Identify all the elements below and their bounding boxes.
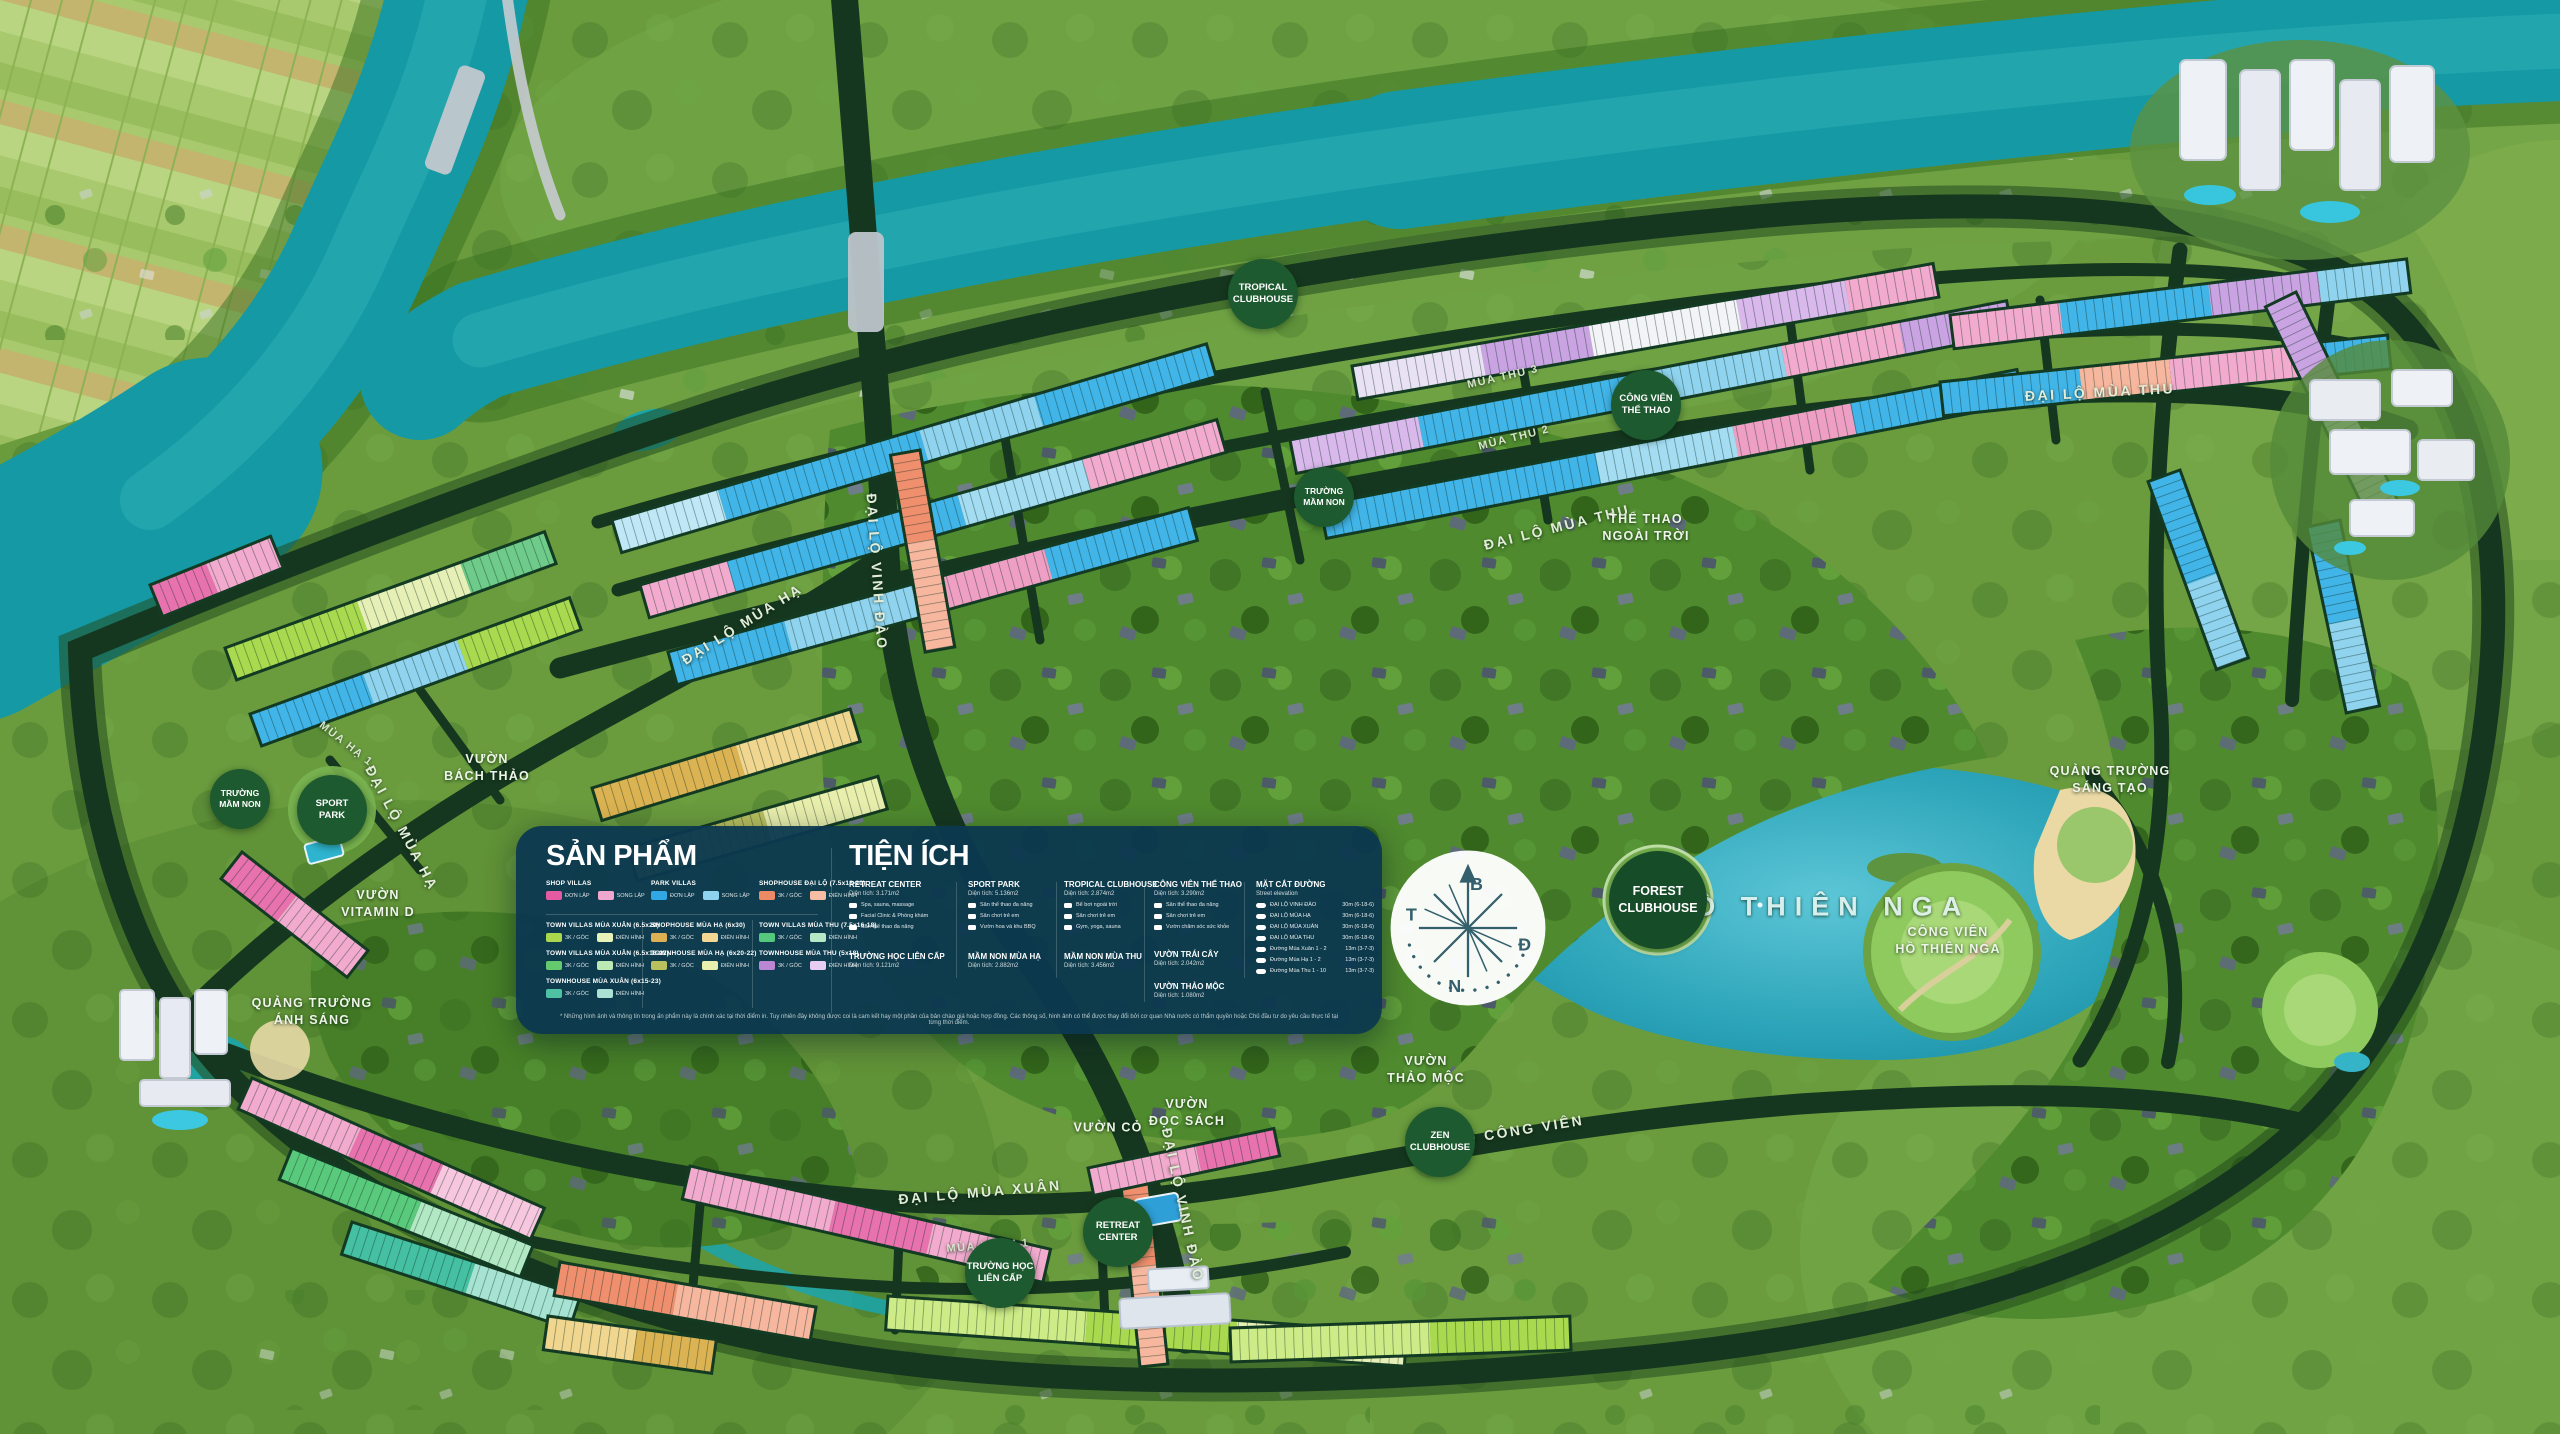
area-label: QUẢNG TRƯỜNG SÁNG TẠO (2050, 763, 2171, 797)
compass-south: N (1448, 976, 1461, 996)
area-label: VƯỜN BÁCH THẢO (444, 751, 530, 785)
poi-tropical-clubhouse: TROPICAL CLUBHOUSE (1228, 259, 1298, 329)
color-swatch (546, 961, 562, 970)
poi-school: TRƯỜNG HỌC LIÊN CẤP (965, 1238, 1035, 1308)
compass: B T Đ N (1383, 843, 1553, 1013)
area-label: VƯỜN THẢO MỘC (1387, 1053, 1465, 1087)
resort-complex (2270, 340, 2510, 580)
road-icon (1256, 925, 1266, 930)
masterplan-map: ĐẠI LỘ VINH ĐÀO ĐẠI LỘ VINH ĐÀO ĐẠI LỘ M… (0, 0, 2560, 1434)
feature-icon (1064, 903, 1072, 908)
area-label: QUẢNG TRƯỜNG ÁNH SÁNG (252, 995, 373, 1029)
color-swatch (546, 989, 562, 998)
color-swatch (759, 891, 775, 900)
amenity-item: SPORT PARK Diện tích: 5.136m2 Sân thể th… (968, 880, 1068, 930)
color-swatch (759, 933, 775, 942)
road-icon (1256, 958, 1266, 963)
road-icon (1256, 914, 1266, 919)
road-icon (1256, 936, 1266, 941)
compass-east: Đ (1518, 935, 1531, 955)
amenity-item: CÔNG VIÊN THỂ THAO Diện tích: 3.290m2 Sâ… (1154, 880, 1254, 930)
amenity-item: RETREAT CENTER Diện tích: 3.171m2 Spa, s… (849, 880, 949, 930)
area-label: THỂ THAO NGOÀI TRỜI (1602, 511, 1689, 545)
color-swatch (651, 933, 667, 942)
poi-sport-park: SPORT PARK (297, 775, 367, 845)
amenity-item: MẦM NON MÙA HẠ Diện tích: 2.882m2 (968, 952, 1068, 969)
legend-panel: SẢN PHẨM TIỆN ÍCH SHOP VILLAS ĐƠN LẬPSON… (516, 826, 1382, 1034)
amenity-item: VƯỜN THẢO MỘC Diện tích: 1.080m2 (1154, 982, 1254, 999)
feature-icon (849, 903, 857, 908)
color-swatch (810, 891, 826, 900)
road-icon (1256, 969, 1266, 974)
feature-icon (968, 903, 976, 908)
feature-icon (1154, 914, 1162, 919)
compass-west: T (1406, 904, 1417, 924)
product-item: TOWNHOUSE MÙA XUÂN (6x15-23) 3K / GÓCĐIỂ… (546, 978, 671, 998)
color-swatch (702, 961, 718, 970)
poi-forest-clubhouse: FOREST CLUBHOUSE (1609, 851, 1707, 949)
feature-icon (968, 925, 976, 930)
color-swatch (651, 891, 667, 900)
product-item: SHOPHOUSE MÙA HẠ (6x30) 3K / GÓCĐIỂN HÌN… (651, 922, 776, 942)
feature-icon (849, 925, 857, 930)
color-swatch (651, 961, 667, 970)
product-item: PARK VILLAS ĐƠN LẬPSONG LẬP (651, 880, 776, 900)
poi-kindergarten: TRƯỜNG MẦM NON (1294, 467, 1354, 527)
color-swatch (597, 933, 613, 942)
map-canvas (0, 0, 2560, 1434)
products-title: SẢN PHẨM (546, 840, 697, 873)
lake-label: HỒ THIÊN NGA (1666, 892, 1971, 923)
color-swatch (597, 961, 613, 970)
poi-retreat-center: RETREAT CENTER (1083, 1197, 1153, 1267)
color-swatch (546, 933, 562, 942)
poi-zen-clubhouse: ZEN CLUBHOUSE (1405, 1107, 1475, 1177)
feature-icon (968, 914, 976, 919)
color-swatch (810, 961, 826, 970)
road-sections: MẶT CẮT ĐƯỜNG Street elevation ĐẠI LỘ VI… (1256, 880, 1374, 974)
feature-icon (849, 914, 857, 919)
poi-kindergarten: TRƯỜNG MẦM NON (210, 769, 270, 829)
amenity-item: TROPICAL CLUBHOUSE Diện tích: 2.874m2 Bể… (1064, 880, 1164, 930)
area-label: VƯỜN ĐỌC SÁCH (1149, 1096, 1225, 1130)
area-label: CÔNG VIÊN HỒ THIÊN NGA (1895, 924, 2000, 958)
product-item: TOWNHOUSE MÙA HẠ (6x20-22) 3K / GÓCĐIỂN … (651, 950, 776, 970)
area-label: VƯỜN VITAMIN D (341, 887, 415, 921)
color-swatch (759, 961, 775, 970)
amenity-item: TRƯỜNG HỌC LIÊN CẤP Diện tích: 9.121m2 (849, 952, 949, 969)
color-swatch (598, 891, 614, 900)
feature-icon (1154, 903, 1162, 908)
road-icon (1256, 903, 1266, 908)
compass-north: B (1470, 874, 1483, 894)
amenity-item: VƯỜN TRÁI CÂY Diện tích: 2.042m2 (1154, 950, 1254, 967)
color-swatch (703, 891, 719, 900)
color-swatch (702, 933, 718, 942)
feature-icon (1064, 914, 1072, 919)
legend-disclaimer: * Những hình ảnh và thông tin trong ấn p… (556, 1014, 1342, 1026)
feature-icon (1064, 925, 1072, 930)
road-icon (1256, 947, 1266, 952)
feature-icon (1154, 925, 1162, 930)
color-swatch (810, 933, 826, 942)
amenity-item: MẦM NON MÙA THU Diện tích: 3.456m2 (1064, 952, 1164, 969)
amenities-title: TIỆN ÍCH (849, 840, 969, 873)
area-label: VƯỜN CỎ (1073, 1120, 1142, 1137)
color-swatch (597, 989, 613, 998)
color-swatch (546, 891, 562, 900)
poi-sports-park-circle: CÔNG VIÊN THỂ THAO (1611, 370, 1681, 440)
